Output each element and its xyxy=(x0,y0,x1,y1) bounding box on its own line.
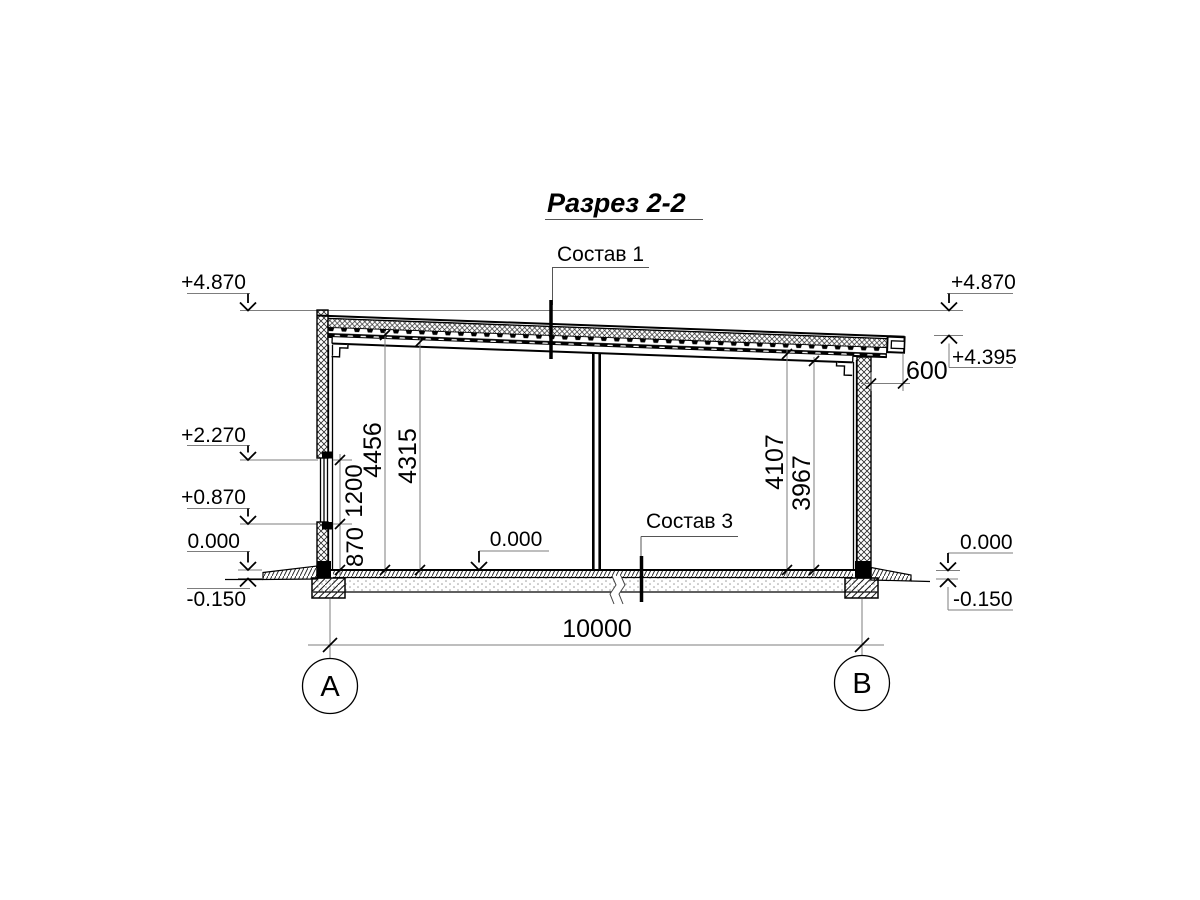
dim-overhang: 600 xyxy=(861,354,948,391)
elev-left-zero-value: 0.000 xyxy=(187,530,240,553)
section-drawing: Разрез 2-2 xyxy=(0,0,1200,900)
elev-right-below: -0.150 xyxy=(940,579,1013,611)
elevation-marks-left: +4.870 +2.270 +0.870 0.000 -0.150 xyxy=(181,271,256,611)
foundation-a xyxy=(312,578,345,598)
page-title: Разрез 2-2 xyxy=(547,188,686,218)
elev-floor-zero-arrow xyxy=(471,562,487,570)
elev-floor-zero: 0.000 xyxy=(471,528,549,570)
dim-span-value: 10000 xyxy=(562,615,632,643)
window-sill-block xyxy=(322,522,333,530)
callout-layer1-label: Состав 1 xyxy=(557,243,644,266)
column-right-flange xyxy=(598,353,601,570)
elev-right-zero-value: 0.000 xyxy=(960,531,1013,554)
eave-fascia-inner xyxy=(891,341,904,349)
dim-4456-value: 4456 xyxy=(359,422,387,478)
elev-right-below-value: -0.150 xyxy=(953,588,1013,611)
dim-span: 10000 xyxy=(308,599,884,659)
dim-3967-value: 3967 xyxy=(788,455,816,511)
wall-a-base-block xyxy=(317,561,331,578)
elev-left-below-value: -0.150 xyxy=(186,588,246,611)
elev-left-mid-value: +2.270 xyxy=(181,424,246,447)
roof-assembly xyxy=(316,316,905,378)
dim-sill-height-value: 870 xyxy=(342,527,369,567)
elev-left-zero-arrow xyxy=(240,562,256,570)
elev-left-low-value: +0.870 xyxy=(181,486,246,509)
elev-right-top: +4.870 xyxy=(941,271,1016,311)
elev-right-eave-arrow xyxy=(941,336,957,344)
beam-bracket-right xyxy=(836,362,852,376)
window-head-block xyxy=(322,452,333,459)
elev-right-eave: +4.395 xyxy=(941,336,1017,370)
wall-a-upper xyxy=(317,310,328,458)
dim-4315-value: 4315 xyxy=(394,428,422,484)
column-left-flange xyxy=(592,353,595,570)
floor-slab xyxy=(313,570,877,604)
middle-column xyxy=(592,353,601,570)
elev-right-zero-arrow xyxy=(940,563,956,571)
elevation-marks-right: +4.870 +4.395 0.000 -0.150 xyxy=(940,271,1017,611)
elev-left-zero: 0.000 xyxy=(187,530,256,570)
dim-interior-heights: 4456 4315 4107 3967 xyxy=(359,330,819,576)
elev-left-below: -0.150 xyxy=(186,579,256,612)
elev-left-mid-arrow xyxy=(240,452,256,460)
elev-left-mid: +2.270 xyxy=(181,424,256,460)
elev-right-zero: 0.000 xyxy=(940,531,1013,571)
wall-b xyxy=(854,357,872,578)
axis-b-label: В xyxy=(852,668,871,700)
axis-bubbles: А В xyxy=(303,656,890,714)
elev-right-eave-value: +4.395 xyxy=(952,346,1017,369)
elev-floor-zero-value: 0.000 xyxy=(490,528,543,551)
elev-right-below-arrow xyxy=(940,579,956,587)
blind-area-right xyxy=(871,568,911,582)
section-drawing-sheet: Разрез 2-2 xyxy=(0,0,1200,900)
wall-a xyxy=(317,310,333,578)
elev-left-top: +4.870 xyxy=(181,271,256,311)
elev-left-top-arrow xyxy=(240,303,256,311)
title-block: Разрез 2-2 xyxy=(545,188,703,220)
wall-b-body xyxy=(857,357,871,578)
foundation-b xyxy=(845,578,878,598)
floor-screed xyxy=(333,570,853,578)
elev-left-low: +0.870 xyxy=(181,486,256,524)
floor-underlayer xyxy=(313,578,877,593)
wall-b-base-block xyxy=(855,561,871,578)
beam-bracket-left xyxy=(332,344,348,358)
elev-right-top-value: +4.870 xyxy=(951,271,1016,294)
elev-left-top-value: +4.870 xyxy=(181,271,246,294)
elev-left-low-arrow xyxy=(240,516,256,524)
ground-line-right xyxy=(911,581,930,582)
window-a xyxy=(321,452,334,530)
dim-overhang-value: 600 xyxy=(906,357,948,385)
blind-area-left xyxy=(263,566,317,580)
callout-layer3-label: Состав 3 xyxy=(646,510,733,533)
axis-a-label: А xyxy=(320,671,340,703)
dim-4107-value: 4107 xyxy=(761,434,789,490)
elev-right-top-arrow xyxy=(941,303,957,311)
